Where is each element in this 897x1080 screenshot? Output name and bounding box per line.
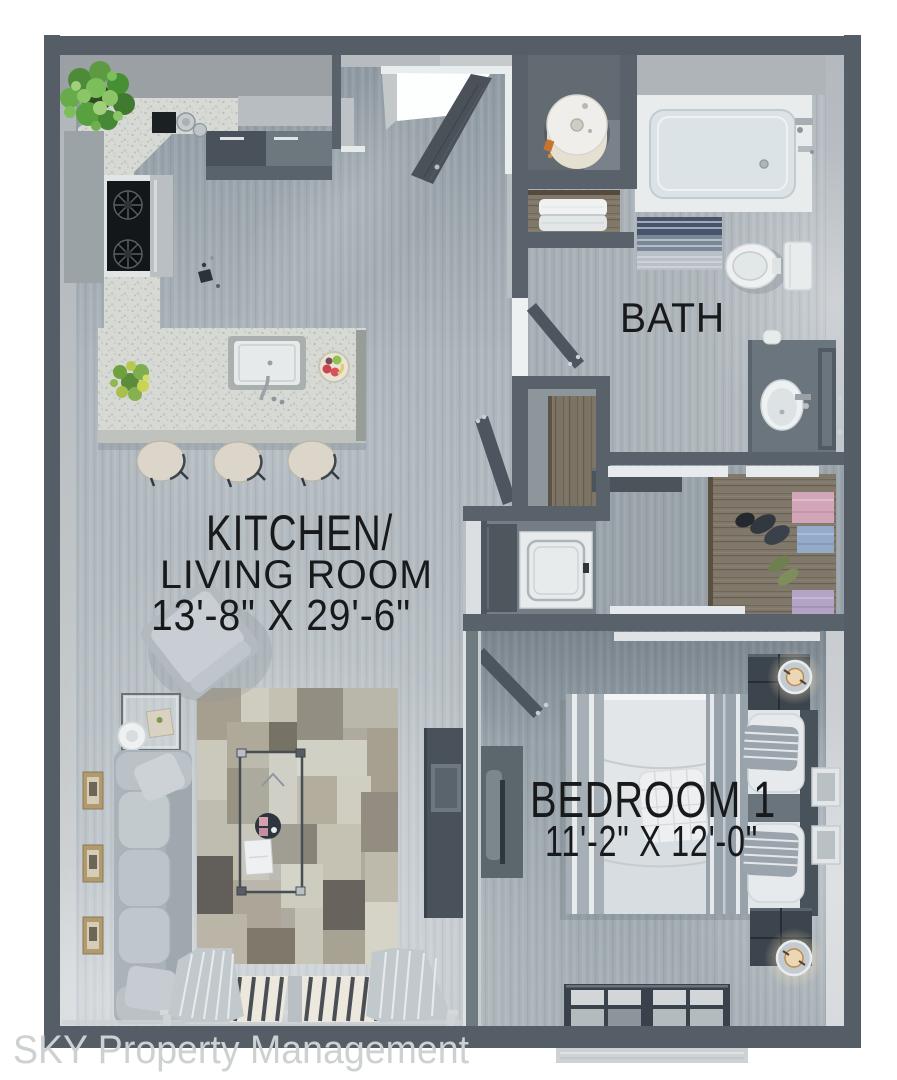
svg-text:SKY Property Management: SKY Property Management — [13, 1028, 469, 1072]
svg-text:13'-8" X 29'-6": 13'-8" X 29'-6" — [151, 591, 411, 640]
svg-text:BATH: BATH — [620, 294, 725, 341]
svg-text:11'-2" X 12'-0": 11'-2" X 12'-0" — [545, 817, 758, 866]
